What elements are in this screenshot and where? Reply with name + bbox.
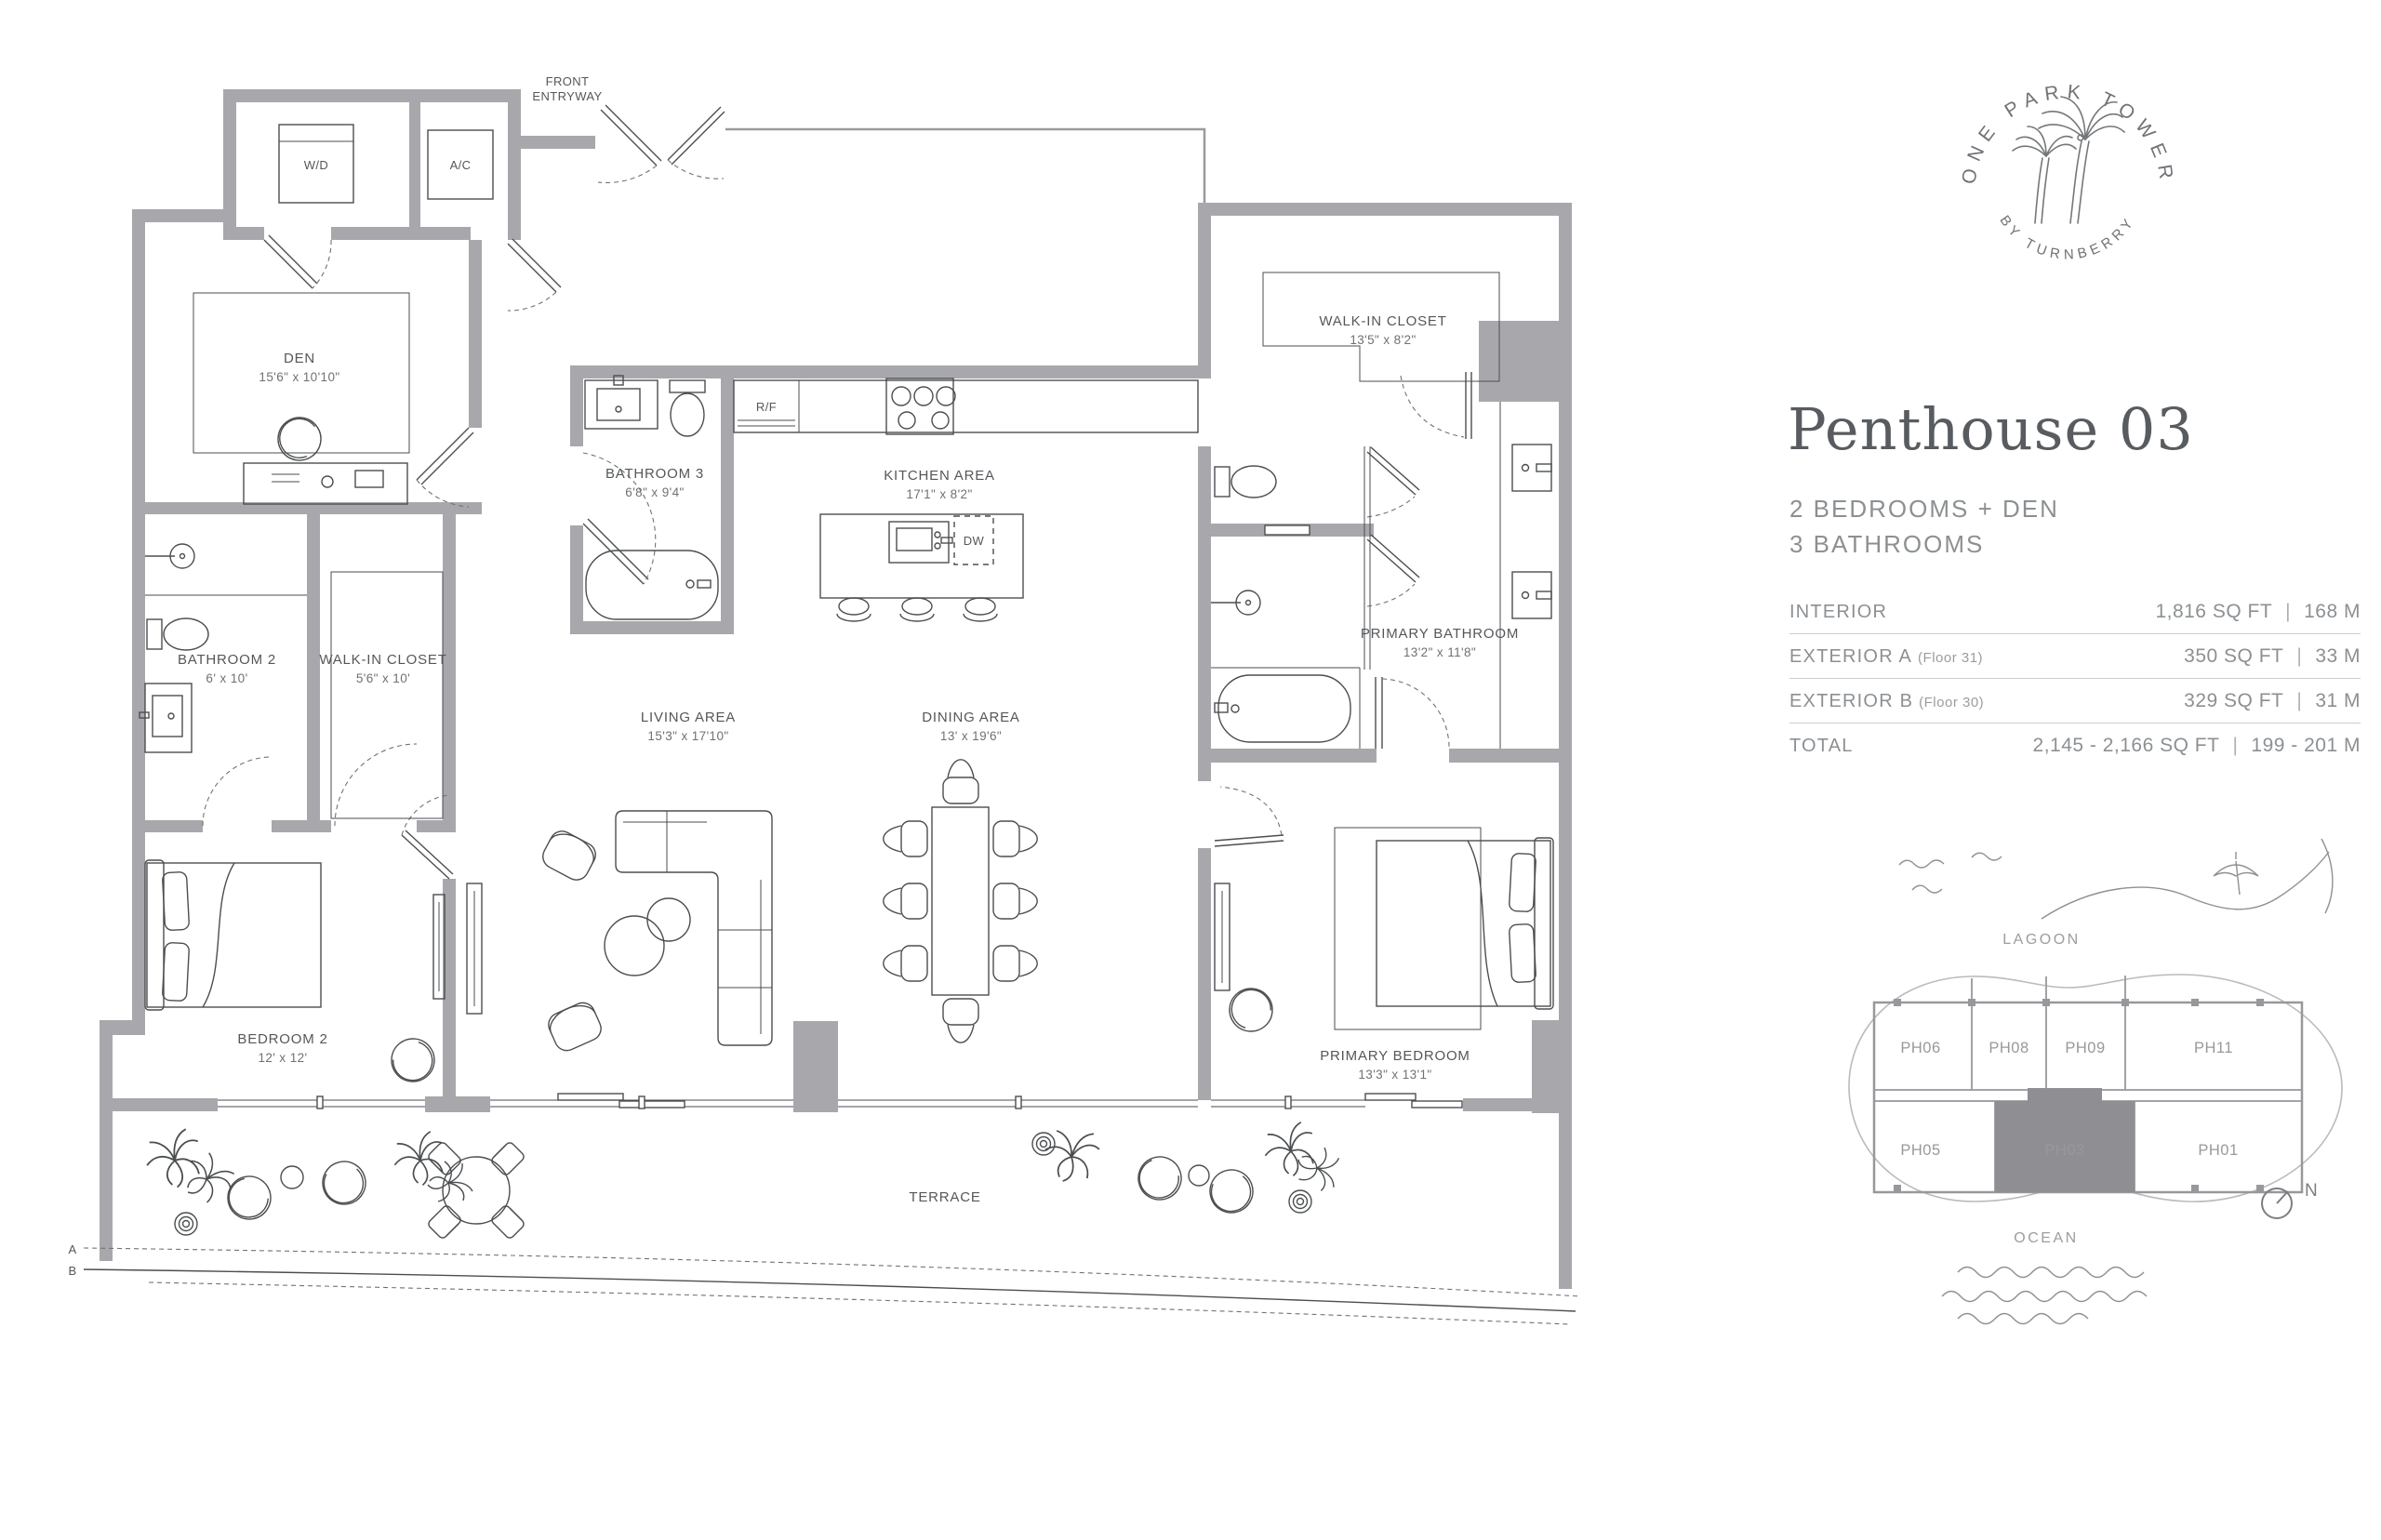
spec-separator: | [2283, 645, 2315, 667]
primary-closet-label: WALK-IN CLOSET [1319, 313, 1446, 329]
page-title: Penthouse 03 [1788, 395, 2194, 463]
doors [203, 105, 1471, 879]
ocean-label: OCEAN [2014, 1230, 2078, 1246]
front-entryway-label-2: ENTRYWAY [532, 89, 602, 103]
spec-metric: 31 M [2315, 690, 2361, 711]
primary-bath-label: PRIMARY BATHROOM [1361, 626, 1519, 642]
spec-sqft: 2,145 - 2,166 SQ FT [2033, 735, 2220, 756]
primary-bedroom-label: PRIMARY BEDROOM [1320, 1048, 1470, 1064]
closet2-dims: 5'6" x 10' [356, 671, 410, 685]
spec-label: INTERIOR [1789, 602, 1887, 622]
unit-ph08: PH08 [1989, 1040, 2029, 1056]
spec-label: EXTERIOR A [1789, 646, 1912, 667]
partition-extensions [1972, 976, 2125, 1002]
key-plan: LAGOON PH06 PH08 PH09 PH11 PH05 PH03 PH0… [1849, 839, 2342, 1324]
spec-row-total: TOTAL 2,145 - 2,166 SQ FT|199 - 201 M [1789, 724, 2361, 767]
ocean-waves [1942, 1268, 2147, 1324]
bathroom3-dims: 6'8" x 9'4" [625, 485, 684, 499]
unit-ph05: PH05 [1900, 1142, 1940, 1159]
spec-metric: 168 M [2304, 601, 2361, 622]
dining-label: DINING AREA [922, 710, 1020, 725]
terrace-table-set [427, 1141, 525, 1240]
bathroom2-label: BATHROOM 2 [178, 652, 276, 668]
spec-separator: | [2219, 735, 2251, 756]
logo-arc-top-text: ONE PARK TOWER [1958, 81, 2177, 187]
spec-sqft: 350 SQ FT [2184, 645, 2283, 667]
terrace-furniture [147, 1118, 1349, 1240]
bedroom-count: 2 BEDROOMS + DEN [1789, 491, 2059, 526]
spec-row-interior: INTERIOR 1,816 SQ FT|168 M [1789, 590, 2361, 634]
windows [218, 1094, 1462, 1109]
primary-bath-fixtures [1211, 402, 1551, 749]
svg-text:ONE PARK TOWER: ONE PARK TOWER [1958, 81, 2177, 187]
unit-ph01: PH01 [2198, 1142, 2238, 1159]
floor-plan: FRONT ENTRYWAY W/D A/C DEN 15'6" x 10'10… [68, 74, 1581, 1324]
living-label: LIVING AREA [641, 710, 736, 725]
dining-dims: 13' x 19'6" [940, 729, 1002, 743]
den-label: DEN [284, 351, 315, 366]
spec-separator: | [2283, 690, 2315, 711]
stove-icon [886, 378, 955, 434]
north-label: N [2305, 1181, 2318, 1201]
spec-metric: 199 - 201 M [2251, 735, 2361, 756]
palm-trees-icon [2013, 97, 2124, 223]
logo-arc-bottom-text: BY TURNBERRY [1996, 213, 2138, 263]
bathroom-count: 3 BATHROOMS [1789, 526, 2059, 562]
spec-note: (Floor 30) [1919, 695, 1984, 710]
living-dims: 15'3" x 17'10" [647, 729, 728, 743]
ac-label: A/C [450, 158, 472, 172]
sheet-drawing: FRONT ENTRYWAY W/D A/C DEN 15'6" x 10'10… [0, 0, 2381, 1540]
unit-ph03: PH03 [2044, 1142, 2084, 1159]
island [820, 514, 1023, 598]
bathroom3-label: BATHROOM 3 [605, 466, 704, 482]
living-furniture [539, 811, 772, 1055]
terrace-edge [84, 1248, 1581, 1324]
section-marker-a: A [68, 1242, 76, 1256]
section-marker-b: B [68, 1264, 76, 1278]
floorplan-sheet: FRONT ENTRYWAY W/D A/C DEN 15'6" x 10'10… [0, 0, 2381, 1540]
spec-row-exterior-a: EXTERIOR A(Floor 31) 350 SQ FT|33 M [1789, 634, 2361, 679]
unit-block: PH06 PH08 PH09 PH11 PH05 PH03 PH01 [1874, 999, 2302, 1192]
unit-ph09: PH09 [2065, 1040, 2105, 1056]
umbrella-icon [2214, 852, 2258, 895]
bathroom2-dims: 6' x 10' [206, 671, 247, 685]
closet2-shelving [331, 572, 443, 818]
kitchen-label: KITCHEN AREA [884, 468, 995, 484]
kitchen-dims: 17'1" x 8'2" [906, 487, 972, 501]
primary-bath-dims: 13'2" x 11'8" [1403, 645, 1476, 659]
lagoon-label: LAGOON [2002, 932, 2080, 948]
terrace-label: TERRACE [909, 1189, 980, 1205]
primary-bedroom-dims: 13'3" x 13'1" [1358, 1068, 1431, 1082]
den-dims: 15'6" x 10'10" [259, 370, 339, 384]
spec-note: (Floor 31) [1918, 650, 1983, 666]
bathroom2-fixtures [140, 544, 307, 752]
den-furniture [193, 293, 409, 504]
north-compass-icon: N [2262, 1181, 2318, 1218]
brand-logo: ONE PARK TOWER BY TURNBERRY [1958, 81, 2177, 262]
front-entryway-label-1: FRONT [546, 74, 590, 88]
spec-sqft: 1,816 SQ FT [2155, 601, 2272, 622]
spec-label: EXTERIOR B [1789, 691, 1913, 711]
area-spec-table: INTERIOR 1,816 SQ FT|168 M EXTERIOR A(Fl… [1789, 590, 2361, 767]
dining-furniture [884, 760, 1037, 1042]
spec-sqft: 329 SQ FT [2184, 690, 2283, 711]
primary-closet-dims: 13'5" x 8'2" [1350, 333, 1416, 347]
bedroom2-label: BEDROOM 2 [237, 1031, 327, 1047]
spec-separator: | [2272, 601, 2304, 622]
lagoon-shore [1899, 839, 2333, 919]
dw-label: DW [964, 534, 985, 548]
spec-row-exterior-b: EXTERIOR B(Floor 30) 329 SQ FT|31 M [1789, 679, 2361, 724]
svg-text:BY TURNBERRY: BY TURNBERRY [1996, 213, 2138, 263]
spec-label: TOTAL [1789, 736, 1854, 756]
primary-bedroom-furniture [1215, 828, 1553, 1040]
unit-ph06: PH06 [1900, 1040, 1940, 1056]
rf-label: R/F [756, 400, 777, 414]
spec-metric: 33 M [2315, 645, 2361, 667]
bedroom2-furniture [145, 860, 482, 1090]
closet2-label: WALK-IN CLOSET [319, 652, 446, 668]
unit-ph11: PH11 [2194, 1040, 2233, 1056]
bedroom2-dims: 12' x 12' [258, 1051, 307, 1065]
wd-label: W/D [304, 158, 328, 172]
unit-ph03-highlight [1995, 1088, 2135, 1192]
unit-summary: 2 BEDROOMS + DEN 3 BATHROOMS [1789, 491, 2059, 562]
